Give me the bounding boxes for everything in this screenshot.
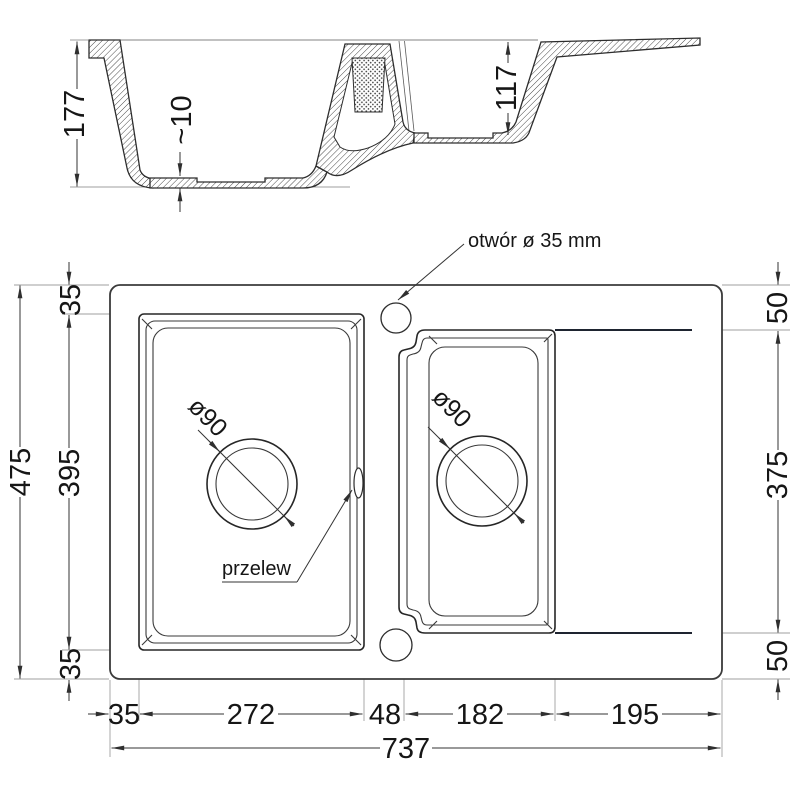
section-bowl2-and-drainer — [414, 38, 700, 143]
dim-chain-left: 475 35 395 35 — [5, 262, 87, 701]
dim-chain-right: 50 375 50 — [762, 262, 794, 700]
dim-drainer-width: 195 — [611, 699, 659, 731]
dim-bowl-height: 395 — [54, 449, 86, 497]
bowl2-far-corner-line-2 — [405, 41, 415, 131]
dim-depth-main-value: 177 — [59, 90, 91, 138]
drawing-canvas: 177 ~10 117 — [0, 0, 800, 800]
dim-depth-bowl2-value: 117 — [491, 65, 523, 111]
tap-hole-label: otwór ø 35 mm — [468, 230, 601, 252]
dim-margin-left: 35 — [108, 699, 140, 731]
tap-hole-top — [381, 303, 411, 333]
dim-total-width: 737 — [382, 733, 430, 765]
dim-depth-main: 177 — [59, 42, 91, 187]
dim-total-height: 475 — [5, 448, 37, 496]
dim-margin-top-left: 35 — [55, 284, 87, 316]
dim-gap: 48 — [369, 699, 401, 731]
dim-bottom-thickness: ~10 — [166, 95, 198, 212]
dim-bowl-width: 272 — [227, 699, 275, 731]
dim-margin-bottom-right: 50 — [762, 640, 794, 672]
plan-view: ø90 ø90 otwór ø 35 mm przelew 475 35 — [5, 230, 794, 765]
overflow-label: przelew — [222, 558, 291, 580]
overflow-slot — [354, 468, 363, 498]
section-view: 177 ~10 117 — [59, 38, 700, 212]
section-main-bowl-bottom — [150, 166, 327, 188]
section-left-wall — [89, 40, 154, 188]
sink-technical-drawing: 177 ~10 117 — [0, 0, 800, 800]
dim-bowl2-width: 182 — [456, 699, 504, 731]
dim-margin-top-right: 50 — [762, 292, 794, 324]
dim-bottom-thickness-value: ~10 — [166, 95, 198, 144]
dim-margin-bottom-left: 35 — [55, 648, 87, 680]
dim-inner-height-right: 375 — [762, 451, 794, 499]
section-overflow-core — [352, 58, 385, 112]
